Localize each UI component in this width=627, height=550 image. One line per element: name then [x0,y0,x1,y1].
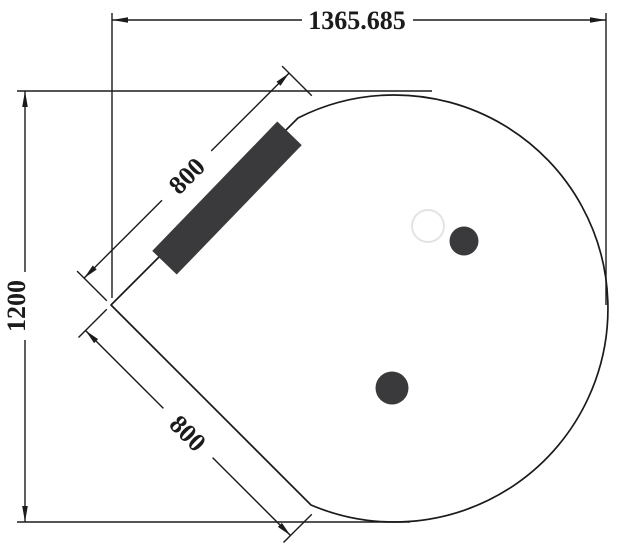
width-dimension-label: 1365.685 [308,6,406,35]
width-arrow-right [590,17,606,23]
upper-edge-dimension-label: 800 [163,152,211,200]
lower-edge-dimension-label: 800 [164,409,212,457]
ghost-hole-circle [412,210,444,242]
lower-edge-ext-vertex [79,309,107,337]
hole-upper-circle [450,227,479,256]
drawing-canvas: 1365.685 1200 800 800 [0,0,627,550]
width-arrow-left [112,17,128,23]
hole-lower-circle [376,372,409,405]
height-arrow-bottom [22,506,28,522]
height-dimension-label: 1200 [2,280,31,332]
upper-edge-ext-vertex [77,271,107,301]
height-arrow-top [22,91,28,107]
lower-edge-ext-corner [284,514,312,542]
cad-drawing: 1365.685 1200 800 800 [0,0,627,550]
